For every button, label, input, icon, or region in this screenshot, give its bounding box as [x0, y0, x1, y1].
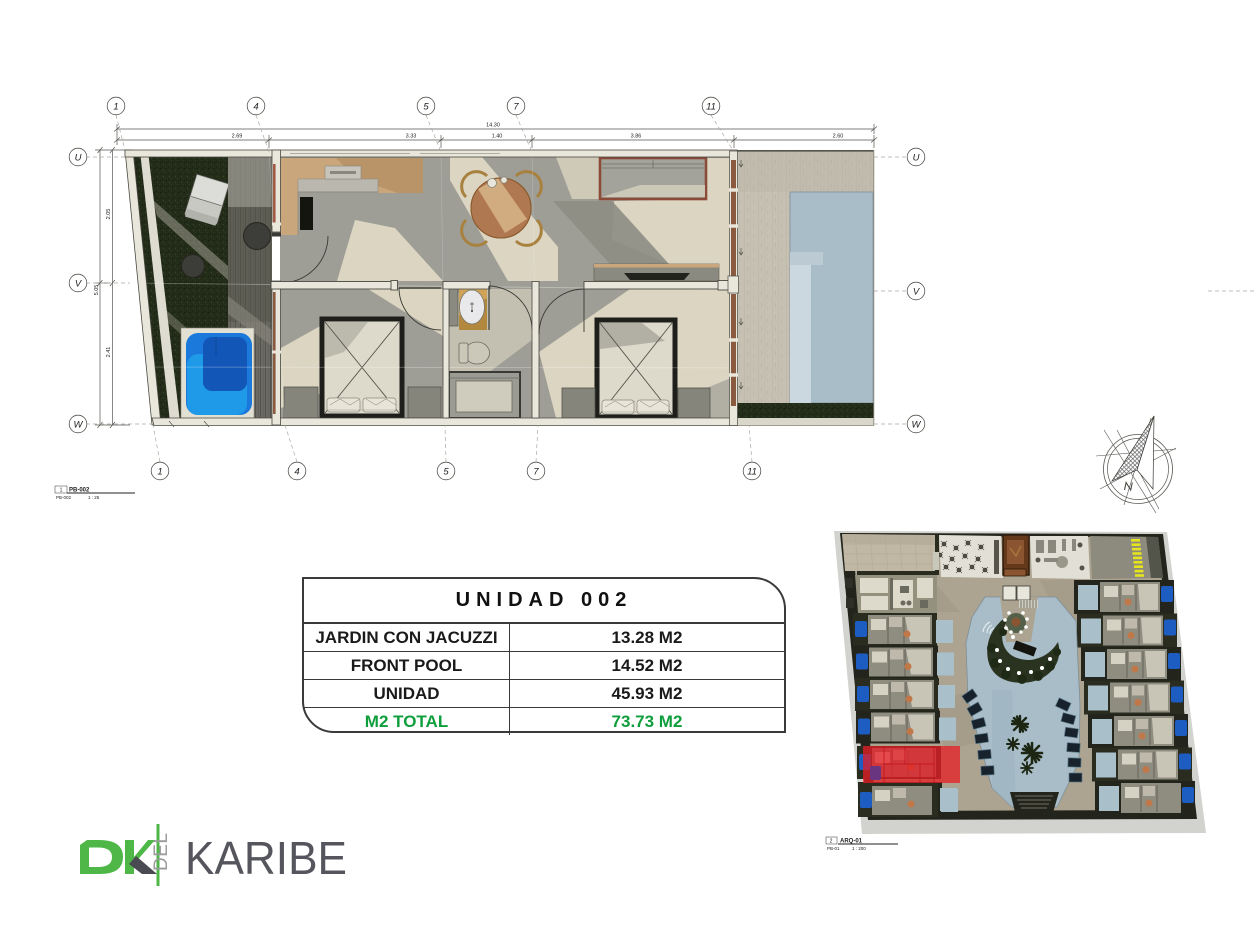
svg-text:KARIBE: KARIBE — [185, 832, 347, 884]
svg-text:1: 1 — [157, 467, 162, 478]
svg-text:W: W — [74, 420, 84, 431]
svg-text:U: U — [913, 153, 920, 164]
svg-text:W: W — [912, 420, 922, 431]
svg-text:7: 7 — [513, 102, 519, 113]
svg-text:1.40: 1.40 — [492, 134, 503, 140]
svg-text:3.86: 3.86 — [631, 134, 642, 140]
svg-text:7: 7 — [533, 467, 539, 478]
svg-text:PB-01: PB-01 — [827, 846, 840, 851]
svg-text:2.05: 2.05 — [106, 209, 112, 220]
svg-text:5: 5 — [443, 467, 449, 478]
svg-text:11: 11 — [747, 467, 757, 478]
svg-text:PB-002: PB-002 — [69, 488, 90, 494]
svg-text:PB-002: PB-002 — [56, 495, 72, 500]
svg-text:3.33: 3.33 — [406, 134, 417, 140]
svg-text:11: 11 — [706, 102, 716, 113]
svg-text:U: U — [75, 153, 82, 164]
svg-text:2.60: 2.60 — [833, 134, 844, 140]
svg-text:4: 4 — [253, 102, 258, 113]
svg-text:4: 4 — [294, 467, 299, 478]
svg-text:2.41: 2.41 — [106, 347, 112, 358]
svg-text:1: 1 — [113, 102, 118, 113]
svg-text:DEL: DEL — [151, 833, 172, 871]
svg-text:2: 2 — [830, 839, 833, 845]
svg-text:2.69: 2.69 — [232, 134, 243, 140]
svg-text:1 : 200: 1 : 200 — [852, 846, 866, 851]
svg-text:14.30: 14.30 — [486, 123, 500, 129]
svg-text:5.05: 5.05 — [94, 285, 100, 296]
svg-text:1 : 25: 1 : 25 — [88, 495, 100, 500]
svg-text:1: 1 — [60, 488, 63, 494]
svg-text:5: 5 — [423, 102, 429, 113]
svg-text:ARQ-01: ARQ-01 — [840, 839, 863, 845]
